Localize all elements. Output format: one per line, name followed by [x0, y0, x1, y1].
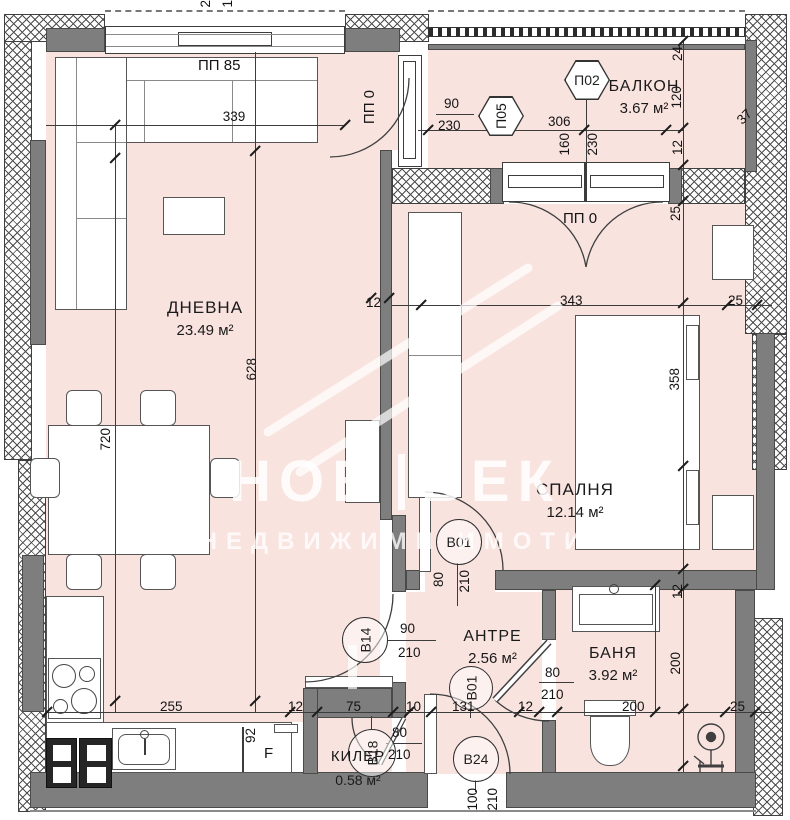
wall-edge [30, 810, 756, 812]
dim-text: 24 [671, 46, 685, 61]
wall [668, 168, 682, 204]
chair [140, 554, 176, 590]
fraction-bar [436, 114, 474, 115]
cooktop-burner [79, 666, 95, 682]
watermark-divider [398, 454, 405, 510]
watermark-brand-left: НОВ [229, 448, 382, 515]
hall-door-leaf [305, 676, 393, 688]
sink-faucet [140, 730, 149, 739]
dim-text: 255 [160, 700, 183, 714]
floor-plan: П02 П05 В01 В14 В01 В24 В18 ДНЕВНА 23.49… [0, 0, 790, 820]
fixture-label-fridge: F [264, 746, 273, 761]
dim-text: 210 [486, 788, 500, 811]
dim-text: 210 [541, 688, 564, 702]
watermark-tagline: НЕДВИЖИМИ ИМОТИ [180, 528, 610, 556]
sofa-cushion-line [76, 58, 77, 309]
dim-text: 80 [545, 666, 560, 680]
dim-text: 92 [244, 728, 258, 743]
living-window [105, 26, 345, 54]
cabinet-pane [53, 767, 71, 783]
cooktop-burner [52, 664, 76, 688]
dim-text: 2 [199, 0, 213, 8]
door-tag-label: В01 [463, 676, 479, 701]
watermark-brand-right: ВЕК [421, 448, 561, 515]
chair [30, 458, 60, 498]
living-balcony-door-leaf [403, 61, 416, 159]
wall [22, 555, 44, 712]
cooktop-burner [71, 688, 97, 714]
door-tag-label: В24 [464, 751, 489, 767]
dim-text: 90 [400, 622, 415, 636]
bathroom-faucet [609, 584, 619, 594]
insulation-hatch [680, 168, 745, 204]
balcony-railing [428, 27, 745, 37]
window-mullion [584, 163, 587, 201]
counter-box [274, 724, 298, 733]
wall [406, 570, 420, 590]
room-label-bathroom: БАНЯ [565, 645, 661, 663]
sofa-cushion-line [76, 142, 126, 143]
dim-text: 306 [548, 115, 571, 129]
insulation-hatch [753, 618, 783, 816]
insulation-hatch [392, 168, 492, 204]
dim-text: 90 [444, 97, 459, 111]
coffee-table [163, 197, 225, 235]
watermark-brand: НОВ ВЕК [180, 448, 610, 515]
room-area-bathroom: 3.92 м² [565, 667, 661, 684]
panel-tag-label: П05 [494, 103, 508, 129]
leader-line [371, 716, 372, 729]
dim-text: 628 [245, 358, 259, 381]
room-area-hall: 2.56 м² [440, 650, 545, 667]
dim-text: 25 [669, 206, 683, 221]
chair [140, 390, 176, 426]
dim-text: 339 [204, 110, 264, 124]
door-tag-b14: В14 [342, 617, 388, 663]
dim-text: 160 [558, 133, 572, 156]
wall [735, 590, 755, 790]
dim-text: 720 [99, 428, 113, 451]
sofa-cushion-line [76, 218, 126, 219]
parapet-mark-pp0-living: ПП 0 [362, 90, 377, 124]
dim-text: 12 [671, 140, 685, 155]
dim-text: 12 [518, 700, 533, 714]
wall [30, 140, 46, 345]
window-line [106, 46, 344, 47]
bedroom-window-sash [508, 175, 582, 188]
room-living-ext [380, 52, 398, 150]
dim-text: 343 [560, 294, 583, 308]
wall [756, 333, 775, 590]
dim-text: 25 [728, 294, 743, 308]
wall [46, 28, 105, 52]
dim-text: 200 [669, 652, 683, 675]
fraction-bar [388, 640, 436, 641]
dim-text: 120 [670, 86, 684, 109]
dim-text: 131 [452, 700, 475, 714]
wardrobe-divider [409, 355, 461, 356]
wall [345, 28, 400, 52]
sofa-chaise [55, 57, 127, 310]
dim-text: 12 [366, 296, 381, 310]
parapet-mark-pp85: ПП 85 [198, 58, 240, 73]
cabinet-pane [87, 745, 106, 761]
nightstand [712, 495, 754, 550]
wall [428, 44, 745, 50]
door-tag-label: В14 [357, 628, 373, 653]
chair [66, 390, 102, 426]
room-area-closet: 0.58 м² [316, 772, 400, 788]
sofa-cushion-line [144, 80, 145, 142]
dim-text: 1 [221, 0, 235, 8]
dim-text: 210 [398, 646, 421, 660]
room-label-living: ДНЕВНА [145, 298, 265, 318]
chair [66, 554, 102, 590]
dim-text: 100 [466, 788, 480, 811]
insulation-hatch [4, 14, 32, 460]
toilet-bowl [590, 716, 630, 766]
bedroom-window-sash [590, 175, 664, 188]
dim-text: 358 [668, 368, 682, 391]
bathroom-sink-basin [579, 594, 653, 625]
room-label-hall: АНТРЕ [440, 628, 545, 646]
wall [542, 720, 556, 774]
dim-text: 200 [622, 700, 645, 714]
balcony-projection-line [105, 10, 345, 12]
dim-line [46, 125, 345, 126]
wall [506, 772, 756, 808]
balcony-projection-line [428, 10, 745, 12]
window-line [106, 34, 344, 35]
dim-text: 25 [730, 700, 745, 714]
cabinet-pane [87, 767, 106, 783]
bathroom-sink [572, 586, 660, 632]
dim-line [115, 125, 116, 712]
dim-text: 12 [671, 584, 685, 599]
door-tag-b24: В24 [453, 736, 499, 782]
living-balcony-door [398, 55, 422, 167]
sink-faucet-stem [144, 739, 146, 755]
wall [745, 40, 757, 172]
dim-text: 230 [438, 119, 461, 133]
kitchen-cabinet [46, 738, 77, 788]
dim-text: 230 [586, 133, 600, 156]
parapet-mark-pp0-bedroom: ПП 0 [563, 211, 597, 226]
kitchen-cabinet [79, 738, 112, 788]
dim-text: 12 [288, 700, 303, 714]
pillow [686, 470, 699, 525]
pillow [686, 325, 699, 380]
dim-text: 80 [432, 572, 446, 587]
dim-text: 210 [458, 570, 472, 593]
kitchen-sink [112, 728, 176, 770]
bedroom-balcony-window [502, 162, 670, 202]
nightstand [712, 225, 754, 280]
dim-text: 80 [392, 726, 407, 740]
dim-text: 10 [406, 700, 421, 714]
room-label-closet: КИЛЕР [316, 748, 400, 765]
cabinet-pane [53, 745, 71, 761]
dim-text: 75 [346, 700, 361, 714]
room-area-living: 23.49 м² [145, 322, 265, 339]
panel-tag-label: П02 [574, 72, 600, 88]
